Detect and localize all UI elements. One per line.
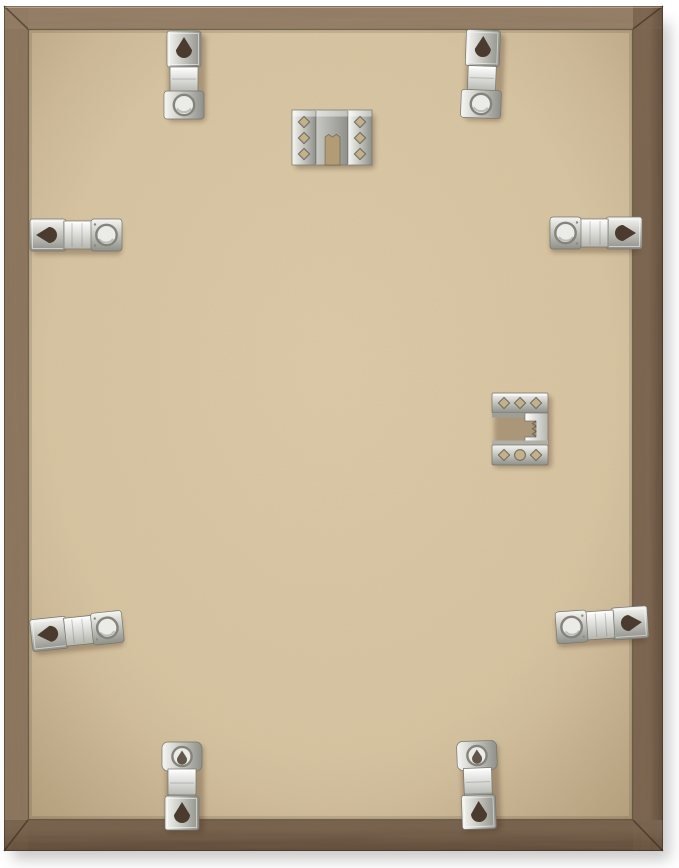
retainer-clip-right-edge: [550, 217, 642, 253]
hanger-right-middle: [492, 393, 552, 468]
retainer-clip-bottom-right-edge: [555, 606, 649, 648]
retainer-clip-left-edge: [30, 219, 122, 255]
retainer-clip-bottom-right: [456, 740, 501, 832]
retainer-clip-bottom-left: [162, 742, 204, 833]
photo-canvas: [0, 0, 679, 868]
frame-back-product-photo: [0, 0, 679, 868]
hanger-top-center: [292, 110, 375, 169]
retainer-clip-top-left: [164, 31, 206, 122]
retainer-clip-top-right: [460, 29, 505, 121]
